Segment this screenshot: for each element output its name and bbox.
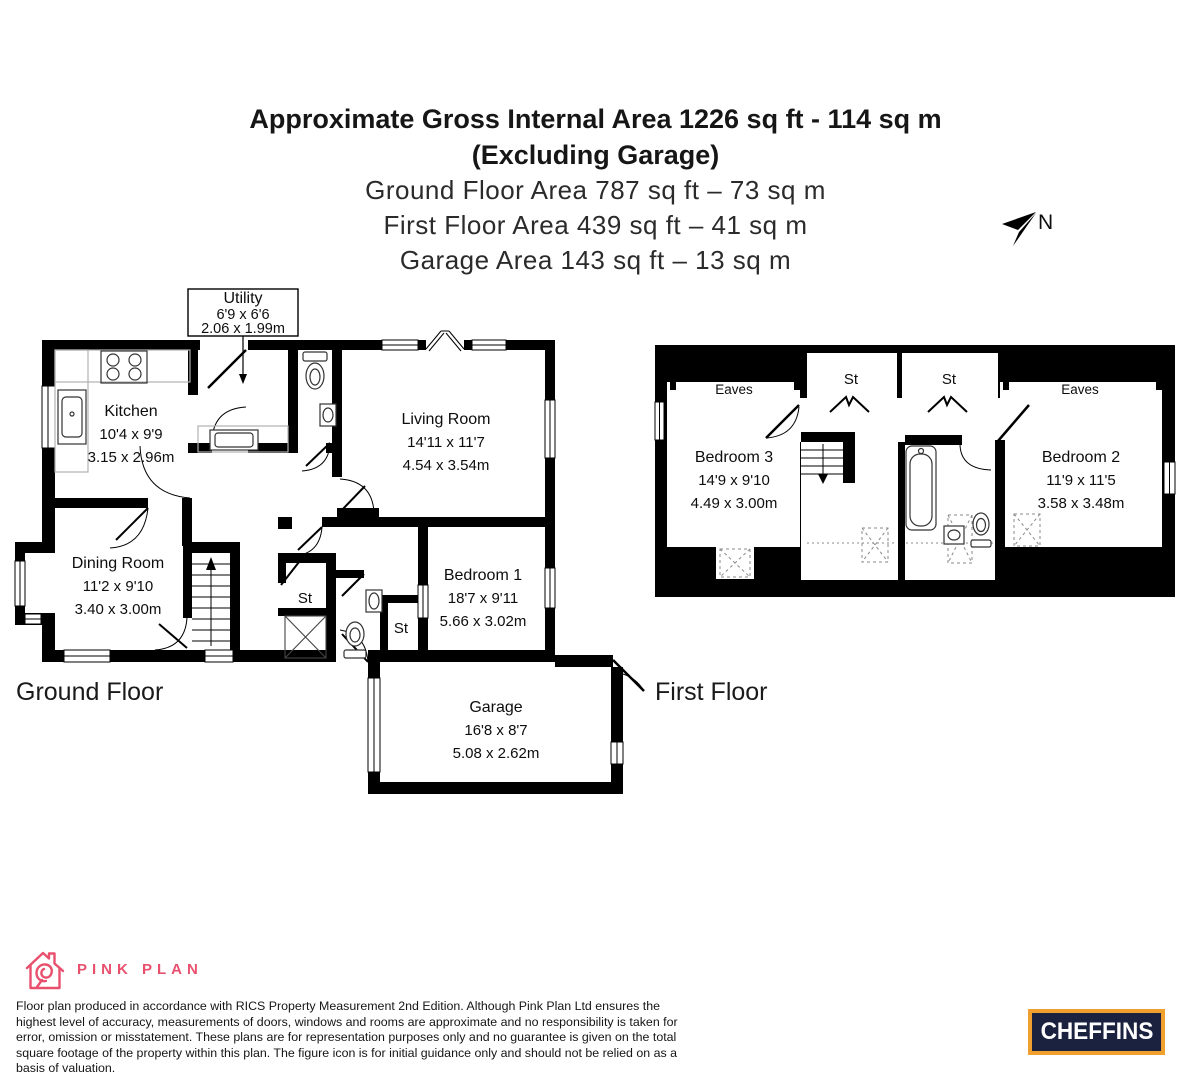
svg-text:3.15 x 2.96m: 3.15 x 2.96m: [88, 449, 175, 466]
ground-floor-plan: Utility 6'9 x 6'6 2.06 x 1.99m Kitchen 1…: [15, 289, 644, 794]
svg-text:18'7 x 9'11: 18'7 x 9'11: [448, 590, 519, 607]
wc-sink-icon: [320, 404, 336, 426]
svg-text:4.49 x 3.00m: 4.49 x 3.00m: [691, 495, 778, 512]
svg-text:Living Room: Living Room: [402, 411, 491, 428]
kitchen-sink-icon: [58, 390, 86, 444]
bedroom-3-label: Bedroom 3 14'9 x 9'10 4.49 x 3.00m: [691, 449, 778, 512]
first-floor-plan: Eaves Eaves St St Bedroom 3 14'9 x 9'10 …: [655, 345, 1175, 706]
bedroom-2-label: Bedroom 2 11'9 x 11'5 3.58 x 3.48m: [1038, 449, 1125, 512]
svg-text:10'4 x 9'9: 10'4 x 9'9: [99, 426, 162, 443]
svg-text:3.58 x 3.48m: 3.58 x 3.48m: [1038, 495, 1125, 512]
svg-text:3.40 x 3.00m: 3.40 x 3.00m: [75, 601, 162, 618]
utility-callout: Utility 6'9 x 6'6 2.06 x 1.99m: [188, 289, 298, 384]
bathroom-sink-icon: [366, 590, 382, 612]
utility-sink-icon: [210, 430, 258, 450]
bathroom-toilet-icon: [344, 622, 366, 658]
svg-text:5.08 x 2.62m: 5.08 x 2.62m: [453, 745, 540, 762]
eaves-right-label: Eaves: [1061, 382, 1099, 397]
svg-text:Bedroom 1: Bedroom 1: [444, 567, 522, 584]
store-1-label: St: [298, 590, 313, 607]
svg-text:4.54 x 3.54m: 4.54 x 3.54m: [403, 457, 490, 474]
first-floor-toilet-icon: [971, 513, 991, 547]
first-floor-caption: First Floor: [655, 678, 768, 706]
north-arrow-icon: N: [1002, 211, 1053, 246]
svg-text:Bedroom 3: Bedroom 3: [695, 449, 773, 466]
svg-text:5.66 x 3.02m: 5.66 x 3.02m: [440, 613, 527, 630]
pink-plan-house-icon: [23, 946, 69, 994]
stove-icon: [101, 351, 147, 383]
bathtub-icon: [906, 446, 936, 530]
floorplan-page: { "header": { "title_line1": "Approximat…: [0, 0, 1191, 1080]
floorplan-drawing: N: [0, 0, 1191, 1080]
ground-floor-stairs: [192, 557, 230, 646]
svg-text:Bedroom 2: Bedroom 2: [1042, 449, 1120, 466]
wc-toilet-icon: [303, 352, 327, 389]
svg-text:11'2 x 9'10: 11'2 x 9'10: [83, 578, 154, 595]
cheffins-logo-text: CHEFFINS: [1040, 1018, 1153, 1046]
svg-text:Dining Room: Dining Room: [72, 555, 164, 572]
cheffins-logo: CHEFFINS: [1028, 1009, 1165, 1055]
svg-text:16'8 x 8'7: 16'8 x 8'7: [464, 722, 527, 739]
ground-floor-caption: Ground Floor: [16, 678, 163, 706]
dining-room-label: Dining Room 11'2 x 9'10 3.40 x 3.00m: [72, 555, 164, 618]
living-room-label: Living Room 14'11 x 11'7 4.54 x 3.54m: [402, 411, 491, 474]
first-floor-sink-icon: [944, 526, 964, 544]
svg-text:11'9 x 11'5: 11'9 x 11'5: [1046, 472, 1115, 489]
bay-window: [426, 331, 464, 351]
utility-dims-metric: 2.06 x 1.99m: [201, 321, 285, 337]
store-right-label: St: [942, 371, 957, 388]
utility-label: Utility: [223, 290, 262, 307]
svg-text:Kitchen: Kitchen: [104, 403, 157, 420]
svg-text:14'9 x 9'10: 14'9 x 9'10: [698, 472, 770, 489]
pink-plan-logo-text: PINK PLAN: [77, 961, 203, 978]
store-2-label: St: [394, 620, 409, 637]
bedroom-1-label: Bedroom 1 18'7 x 9'11 5.66 x 3.02m: [440, 567, 527, 630]
garage-label: Garage 16'8 x 8'7 5.08 x 2.62m: [453, 699, 540, 762]
kitchen-label: Kitchen 10'4 x 9'9 3.15 x 2.96m: [88, 403, 175, 466]
svg-text:Garage: Garage: [469, 699, 522, 716]
store-left-label: St: [844, 371, 859, 388]
eaves-left-label: Eaves: [715, 382, 753, 397]
north-label: N: [1038, 211, 1053, 234]
disclaimer-text: Floor plan produced in accordance with R…: [16, 999, 694, 1077]
svg-text:14'11 x 11'7: 14'11 x 11'7: [407, 434, 485, 451]
